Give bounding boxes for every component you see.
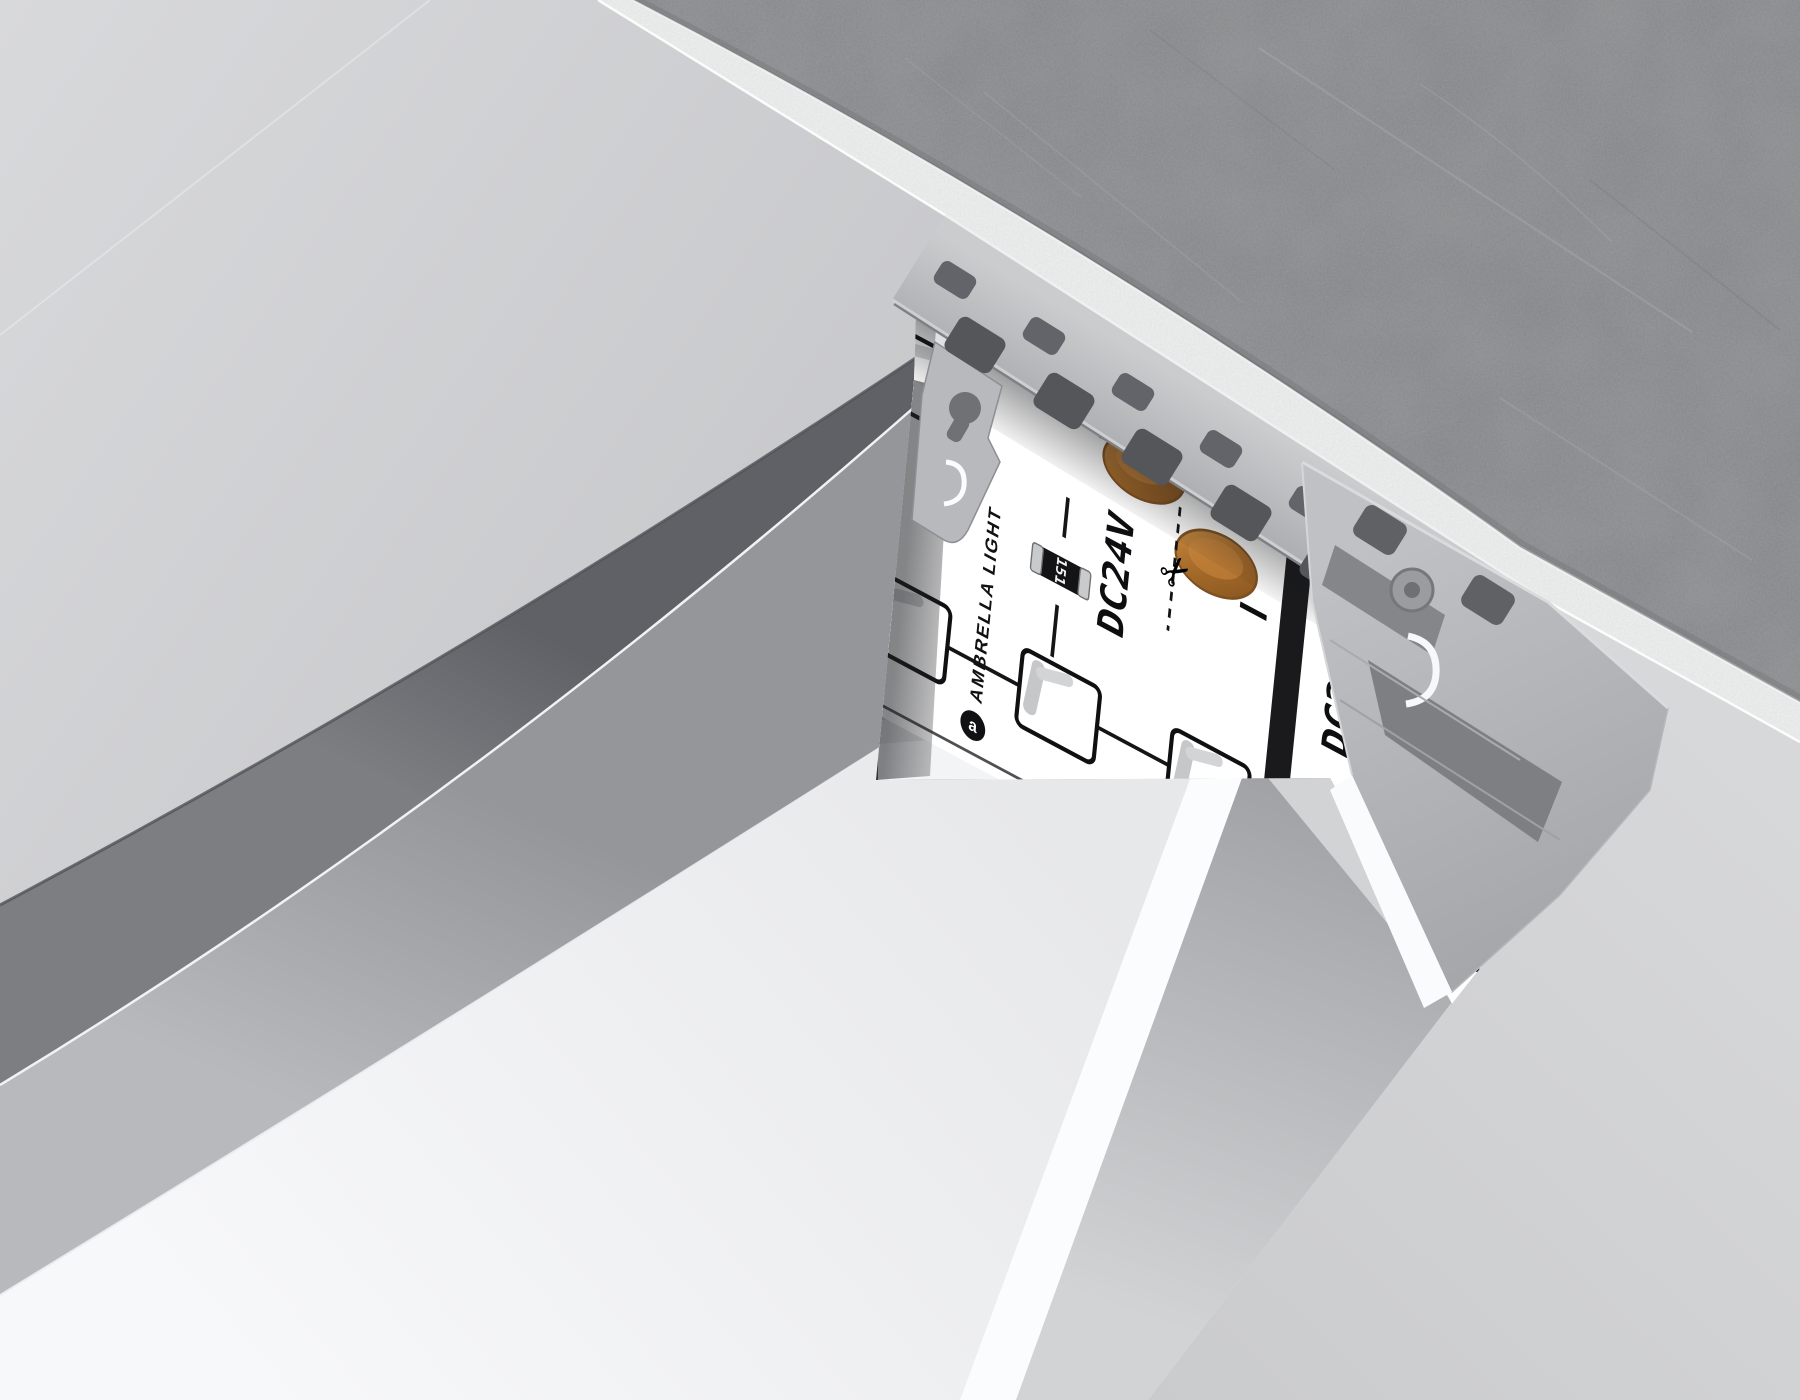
product-render-led-profile: 151 151 151 a AMBRELLA LIGHT a AMBRELLA …	[0, 0, 1800, 1400]
screw-boss-hole	[1404, 582, 1420, 598]
